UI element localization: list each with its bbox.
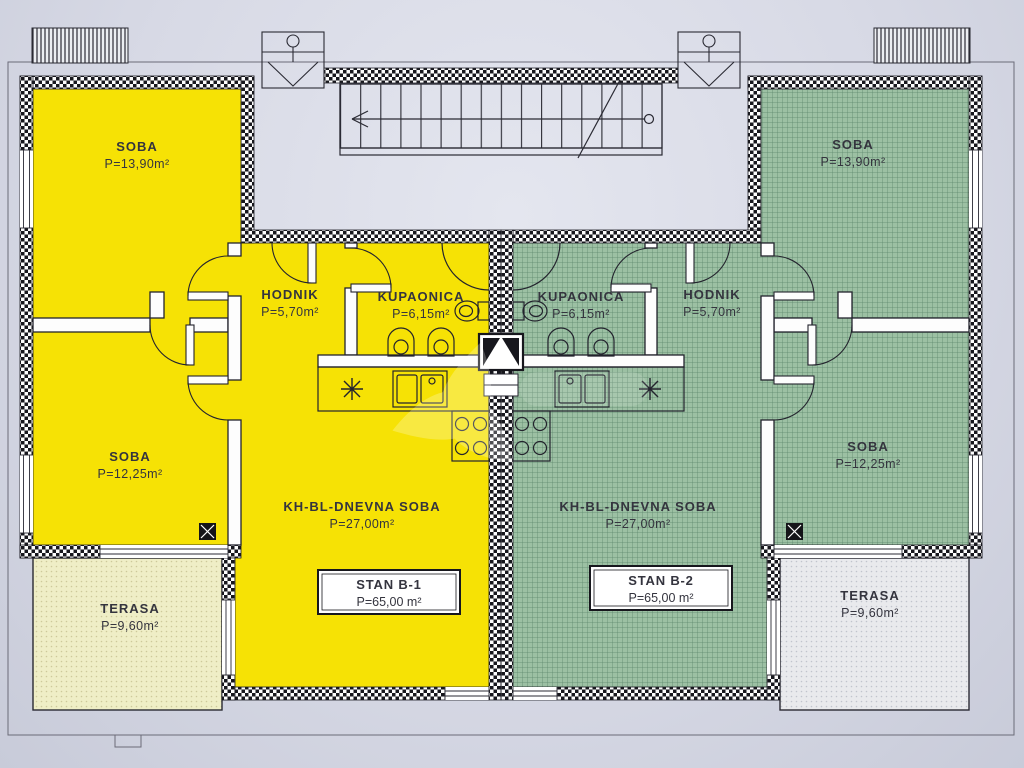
unit-area-b1: P=65,00 m² [357, 595, 422, 609]
room-area-soba2-b2: P=12,25m² [835, 457, 900, 471]
room-label-hodnik-b1: HODNIK [261, 287, 318, 302]
staircase [324, 68, 678, 158]
room-area-dnevna-b1: P=27,00m² [329, 517, 394, 531]
room-label-kupaonica-b1: KUPAONICA [378, 289, 465, 304]
room-area-dnevna-b2: P=27,00m² [605, 517, 670, 531]
chimney-vent-block [32, 28, 128, 63]
room-area-soba1-b1: P=13,90m² [104, 157, 169, 171]
room-area-kupaonica-b1: P=6,15m² [392, 307, 450, 321]
room-label-terasa-b1: TERASA [100, 601, 159, 616]
room-area-soba2-b1: P=12,25m² [97, 467, 162, 481]
room-area-hodnik-b2: P=5,70m² [683, 305, 741, 319]
unit-name-b1: STAN B-1 [356, 577, 421, 592]
room-area-soba1-b2: P=13,90m² [820, 155, 885, 169]
unit-label-box-b2: STAN B-2 P=65,00 m² [590, 566, 732, 610]
room-label-soba1-b2: SOBA [832, 137, 874, 152]
unit-label-box-b1: STAN B-1 P=65,00 m² [318, 570, 460, 614]
stair-wall [324, 68, 678, 83]
terrace-b1 [33, 558, 222, 710]
room-area-terasa-b1: P=9,60m² [101, 619, 159, 633]
room-label-kupaonica-b2: KUPAONICA [538, 289, 625, 304]
room-area-kupaonica-b2: P=6,15m² [552, 307, 610, 321]
room-label-soba2-b1: SOBA [109, 449, 151, 464]
floor-plan-photo: SOBA P=13,90m² SOBA P=12,25m² HODNIK P=5… [0, 0, 1024, 768]
room-label-hodnik-b2: HODNIK [683, 287, 740, 302]
room-label-soba2-b2: SOBA [847, 439, 889, 454]
terrace-b2 [780, 558, 969, 710]
stair-steps [340, 84, 662, 148]
unit-area-b2: P=65,00 m² [629, 591, 694, 605]
floor-drain [199, 523, 216, 540]
floor-plan-drawing: SOBA P=13,90m² SOBA P=12,25m² HODNIK P=5… [0, 0, 1024, 768]
unit-name-b2: STAN B-2 [628, 573, 693, 588]
room-area-hodnik-b1: P=5,70m² [261, 305, 319, 319]
boiler-symbol [341, 378, 363, 400]
room-label-soba1-b1: SOBA [116, 139, 158, 154]
room-label-terasa-b2: TERASA [840, 588, 899, 603]
room-label-dnevna-b1: KH-BL-DNEVNA SOBA [283, 499, 440, 514]
room-label-dnevna-b2: KH-BL-DNEVNA SOBA [559, 499, 716, 514]
downpipe-symbol [262, 32, 324, 88]
room-area-terasa-b2: P=9,60m² [841, 606, 899, 620]
